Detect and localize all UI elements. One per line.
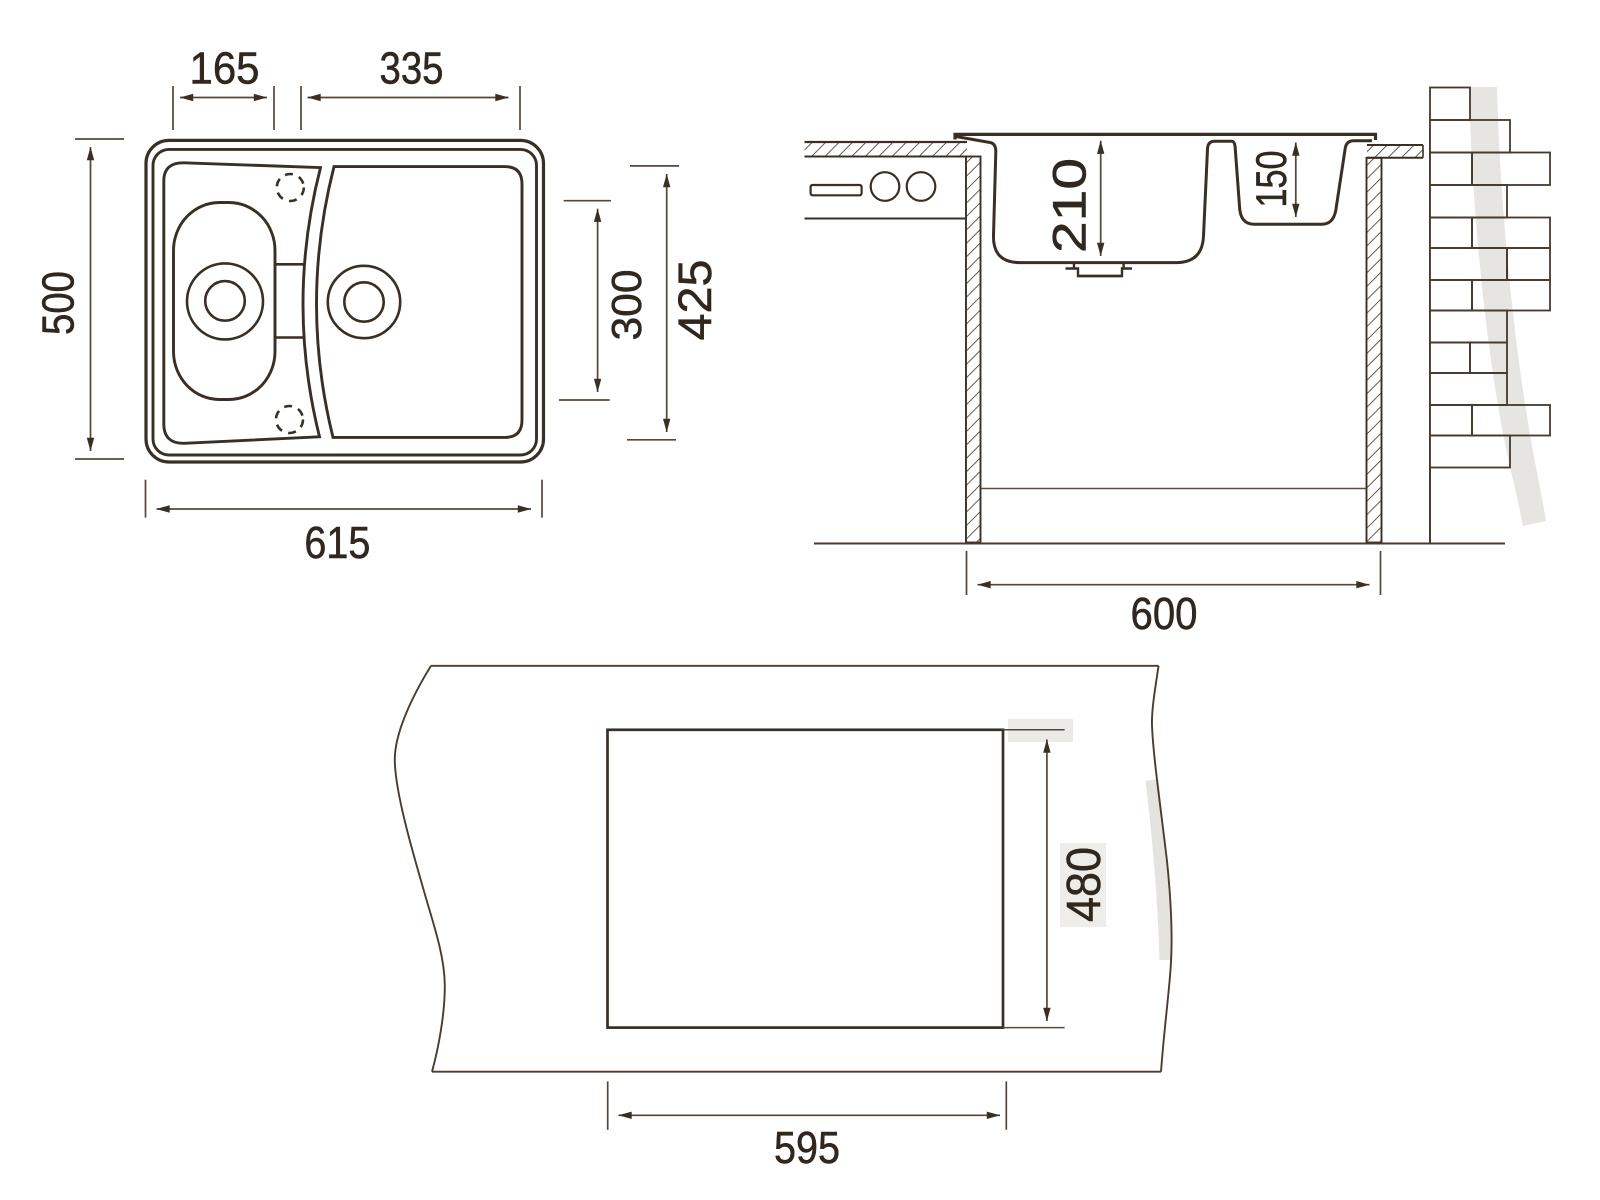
svg-text:480: 480 [1058,847,1111,922]
svg-text:150: 150 [1248,151,1296,208]
svg-text:595: 595 [774,1122,840,1173]
svg-text:335: 335 [380,42,444,93]
svg-text:500: 500 [33,271,84,335]
svg-text:600: 600 [1131,588,1198,639]
svg-text:425: 425 [668,260,721,341]
svg-text:300: 300 [603,270,650,341]
svg-text:210: 210 [1042,158,1095,253]
svg-text:615: 615 [304,517,370,568]
svg-text:165: 165 [190,42,260,93]
